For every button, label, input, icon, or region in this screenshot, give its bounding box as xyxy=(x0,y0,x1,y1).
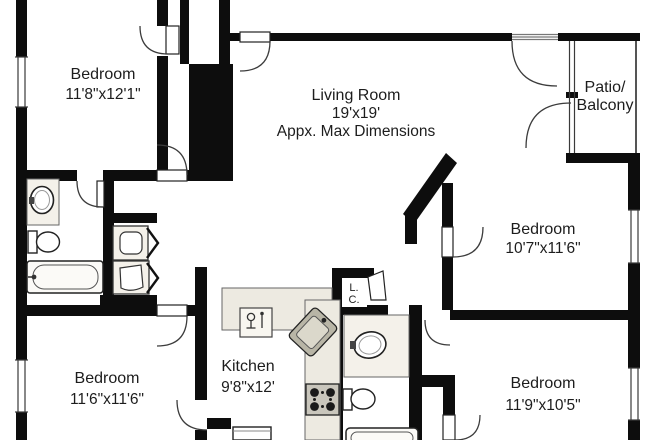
faucet xyxy=(350,341,356,349)
room-dims: 10'7"x11'6" xyxy=(505,240,580,257)
door-swing xyxy=(157,316,187,346)
room-label: Patio/ xyxy=(585,79,626,96)
room-note: Appx. Max Dimensions xyxy=(277,123,436,140)
room-label: Living Room xyxy=(312,87,401,104)
dryer-icon xyxy=(113,261,149,294)
toilet-icon xyxy=(28,231,60,253)
door-leaf xyxy=(240,32,270,42)
room-label: Kitchen xyxy=(221,358,274,375)
room-dims: 11'9"x10'5" xyxy=(505,397,580,414)
floor-plan-drawing: Bedroom 11'8"x12'1" Living Room 19'x19' … xyxy=(0,0,660,440)
room-label: Bedroom xyxy=(511,375,576,392)
room-dims: 11'8"x12'1" xyxy=(65,86,140,103)
bathtub-icon xyxy=(27,261,103,293)
bathroom-left xyxy=(27,179,103,293)
door-swing xyxy=(526,103,571,148)
door-leaf xyxy=(442,227,453,257)
room-dims: 11'6"x11'6" xyxy=(70,391,144,408)
closet-label: C. xyxy=(349,294,360,306)
glazed-sill xyxy=(512,33,558,41)
room-label: Balcony xyxy=(577,97,634,114)
laundry-closet xyxy=(113,226,158,294)
door-swing xyxy=(240,41,270,71)
floor-plan: Bedroom 11'8"x12'1" Living Room 19'x19' … xyxy=(0,0,660,440)
refrigerator-icon xyxy=(233,427,271,440)
door-swing xyxy=(425,320,450,345)
room-label: Bedroom xyxy=(511,221,576,238)
closet-label: L. xyxy=(349,282,358,294)
room-label: Bedroom xyxy=(75,370,140,387)
window-icon xyxy=(14,360,29,412)
window-icon xyxy=(627,368,641,420)
door-swing xyxy=(512,41,557,86)
door-swing xyxy=(140,26,168,54)
dishwasher-icon xyxy=(240,308,272,337)
stove-icon xyxy=(306,384,339,415)
door-leaf xyxy=(166,26,179,54)
door-leaf xyxy=(443,415,455,440)
room-label: Bedroom xyxy=(71,66,136,83)
door-leaf xyxy=(157,305,187,316)
door-leaf xyxy=(157,170,187,181)
door-leaf xyxy=(97,181,104,207)
window-icon xyxy=(14,57,29,107)
door-swing xyxy=(453,227,483,257)
door-swing xyxy=(455,415,480,440)
door-swing xyxy=(177,400,207,430)
room-dims: 9'8"x12' xyxy=(221,379,275,396)
washer-icon xyxy=(113,226,148,260)
closet-door-leaf xyxy=(368,271,386,300)
window-icon xyxy=(627,210,641,263)
room-dims: 19'x19' xyxy=(332,105,380,122)
toilet-icon xyxy=(343,389,375,410)
bathtub-icon xyxy=(346,428,418,440)
